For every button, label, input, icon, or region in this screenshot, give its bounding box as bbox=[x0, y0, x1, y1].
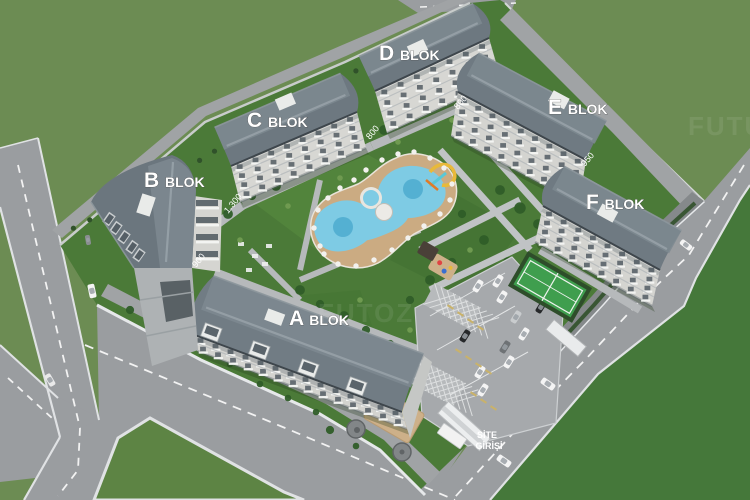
svg-text:FUTU: FUTU bbox=[688, 111, 750, 141]
svg-text:FUTOZ: FUTOZ bbox=[318, 298, 414, 328]
svg-text:GİRİŞİ: GİRİŞİ bbox=[475, 441, 502, 451]
svg-text:SİTE: SİTE bbox=[477, 430, 497, 440]
